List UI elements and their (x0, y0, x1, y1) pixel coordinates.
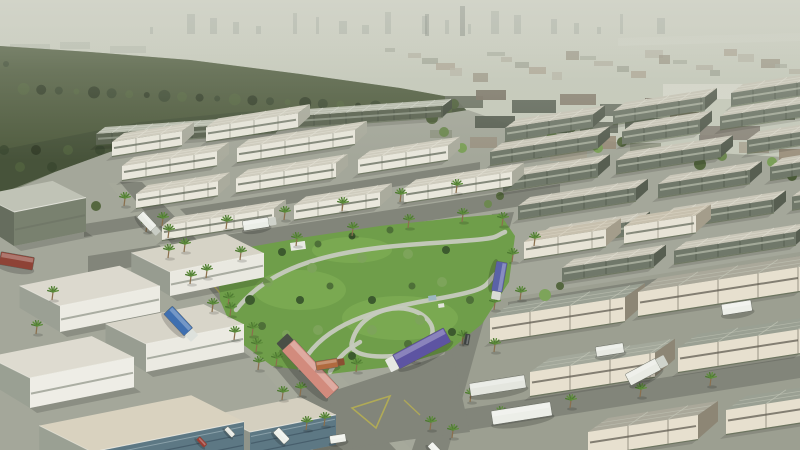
palm-shadow (459, 221, 469, 224)
palm-shadow (449, 437, 459, 440)
palm-shadow (237, 259, 247, 262)
palm-shadow (637, 396, 647, 399)
atmospheric-haze (0, 0, 800, 160)
palm-shadow (567, 407, 577, 410)
vehicle-cab (337, 358, 345, 366)
park-tree (437, 277, 447, 287)
forest-tree (15, 162, 25, 172)
park-tree (409, 283, 416, 290)
palm-shadow (187, 283, 197, 286)
playground-equipment (438, 303, 444, 308)
palm-shadow (293, 245, 303, 248)
palm-shadow (517, 299, 527, 302)
palm-shadow (121, 205, 131, 208)
palm-shadow (339, 210, 349, 213)
park-tree (387, 227, 394, 234)
park-tree (313, 325, 323, 335)
park-tree (442, 246, 450, 254)
park-tree (348, 352, 356, 360)
palm-shadow (509, 261, 519, 264)
palm-shadow (499, 225, 509, 228)
park-tree (278, 248, 286, 256)
palm-shadow (49, 299, 59, 302)
palm-shadow (273, 365, 283, 368)
palm-shadow (203, 277, 213, 280)
palm-shadow (281, 219, 291, 222)
park-tree (258, 322, 266, 330)
park-tree (466, 296, 474, 304)
palm-shadow (427, 429, 437, 432)
park-tree (357, 253, 367, 263)
tree (556, 282, 564, 290)
tree (484, 200, 492, 208)
park-tree (368, 296, 376, 304)
palm-shadow (531, 245, 541, 248)
park-tree (403, 249, 413, 259)
palm-shadow (405, 227, 415, 230)
park-tree (245, 295, 255, 305)
tree (91, 201, 101, 211)
palm-shadow (165, 237, 175, 240)
palm-shadow (297, 395, 307, 398)
palm-shadow (231, 339, 241, 342)
palm-shadow (165, 257, 175, 260)
palm-shadow (279, 399, 289, 402)
palm-shadow (349, 235, 359, 238)
forest-tree (47, 162, 57, 172)
park-tree (307, 263, 317, 273)
palm-shadow (491, 309, 501, 312)
tree (539, 289, 551, 301)
park-tree (315, 241, 322, 248)
palm-shadow (491, 351, 501, 354)
palm-shadow (181, 251, 191, 254)
palm-shadow (223, 228, 233, 231)
palm-shadow (707, 385, 717, 388)
vehicle-cab (491, 291, 501, 301)
palm-shadow (303, 429, 313, 432)
park-tree (296, 296, 304, 304)
industrial-park-aerial-render: Aerial rendering of an industrial park d… (0, 0, 800, 450)
palm-shadow (227, 315, 237, 318)
palm-shadow (353, 371, 363, 374)
park-tree (448, 328, 456, 336)
palm-shadow (253, 351, 263, 354)
park-tree (367, 325, 377, 335)
aerial-scene-svg (0, 0, 800, 450)
palm-shadow (453, 192, 463, 195)
palm-shadow (467, 401, 477, 404)
palm-shadow (249, 335, 259, 338)
palm-shadow (321, 425, 331, 428)
vehicle-cab (268, 217, 277, 226)
palm-shadow (397, 201, 407, 204)
palm-shadow (209, 311, 219, 314)
palm-shadow (33, 333, 43, 336)
palm-shadow (255, 369, 265, 372)
park-tree (415, 315, 425, 325)
park-tree (327, 283, 334, 290)
